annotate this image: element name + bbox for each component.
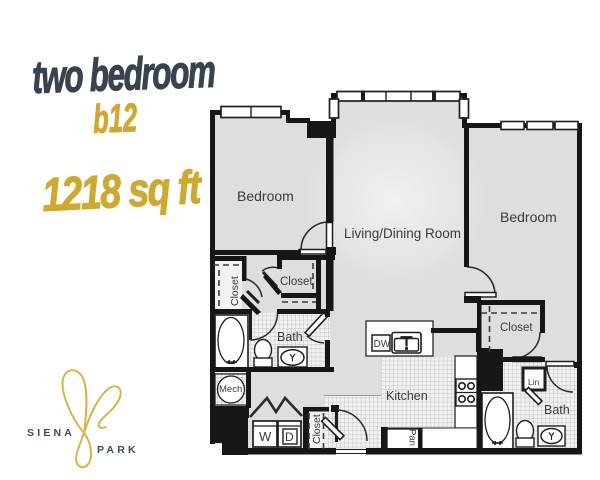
svg-text:Bedroom: Bedroom [500,209,557,225]
svg-text:Lin: Lin [528,377,540,387]
svg-text:b12: b12 [92,97,138,143]
svg-text:D: D [285,430,294,444]
svg-text:1218 sq ft: 1218 sq ft [41,161,204,222]
svg-text:Living/Dining Room: Living/Dining Room [344,226,461,241]
svg-text:Kitchen: Kitchen [386,389,428,403]
svg-text:Bedroom: Bedroom [237,188,294,204]
svg-text:DW: DW [374,339,391,350]
svg-text:Bath: Bath [277,330,303,344]
svg-text:Closet: Closet [311,414,323,444]
svg-text:Bath: Bath [544,403,570,417]
svg-text:Closet: Closet [229,276,241,306]
svg-text:Closet: Closet [500,322,533,334]
svg-text:SIENA: SIENA [27,427,75,439]
svg-text:Closet: Closet [280,276,313,288]
svg-text:PARK: PARK [97,444,139,456]
svg-text:Pan: Pan [407,429,418,446]
svg-text:Mech: Mech [219,384,242,395]
svg-text:two bedroom: two bedroom [31,46,216,104]
svg-text:W: W [259,429,272,444]
